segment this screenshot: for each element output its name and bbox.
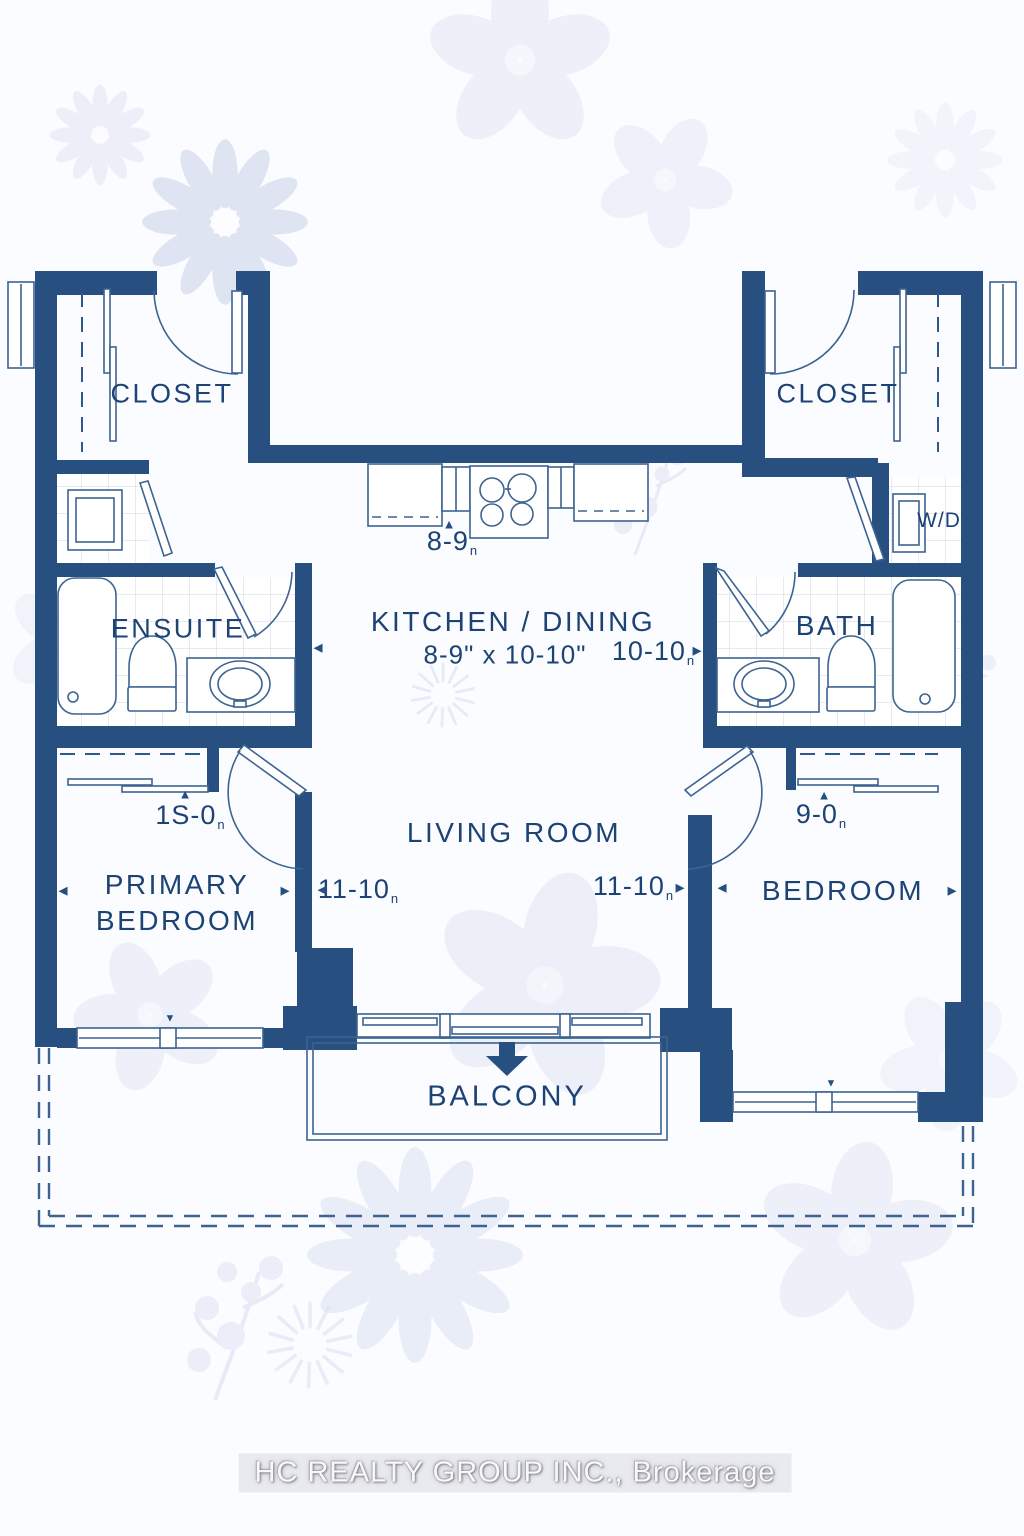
- dim-arrow-right-icon: ►: [690, 644, 705, 659]
- closet-left-door-leaf: [232, 291, 242, 373]
- primary-bedroom-label: PRIMARY BEDROOM: [87, 867, 267, 939]
- kitchen-counter-right: [574, 464, 648, 521]
- closet-left-label: CLOSET: [110, 379, 233, 410]
- kitchen-size-label: 8-9" x 10-10": [424, 640, 587, 671]
- floor-plan-page: CLOSET CLOSET KITCHEN / DINING 8-9" x 10…: [0, 0, 1024, 1536]
- primary-bedroom-door-leaf: [238, 745, 306, 796]
- dim-living-right: 11-10n: [593, 871, 673, 903]
- dim-arrow-left-icon: ◄: [715, 881, 730, 896]
- bedroom-door-leaf: [685, 746, 753, 796]
- closet-right-door-arc: [770, 290, 854, 374]
- living-room-label: LIVING ROOM: [407, 817, 621, 849]
- floor-plan-drawing: [0, 0, 1024, 1536]
- kitchen-stove: [470, 466, 548, 538]
- bedroom-label: BEDROOM: [762, 875, 924, 907]
- dim-arrow-up-icon: ▲: [818, 789, 831, 802]
- dim-arrow-up-icon: ▲: [443, 518, 456, 531]
- laundry-label: W/D: [917, 509, 961, 533]
- dim-primary-closet: 1S-0n: [155, 800, 224, 832]
- dim-arrow-left-icon: ◄: [315, 883, 330, 898]
- closet-right-door-leaf: [765, 291, 775, 373]
- ensuite-label: ENSUITE: [111, 614, 246, 645]
- dim-arrow-right-icon: ►: [278, 884, 293, 899]
- dim-arrow-left-icon: ◄: [311, 641, 326, 656]
- bath-label: BATH: [796, 610, 879, 642]
- dim-bedroom-closet: 9-0n: [796, 799, 846, 831]
- dim-arrow-up-icon: ▲: [179, 788, 192, 801]
- brokerage-watermark: HC REALTY GROUP INC., Brokerage: [239, 1454, 792, 1493]
- bath-bathtub: [893, 580, 955, 712]
- window-marker-down-icon: ▼: [165, 1014, 176, 1025]
- kitchen-label: KITCHEN / DINING: [371, 606, 655, 638]
- bath-toilet: [828, 636, 875, 687]
- window-marker-down-icon: ▼: [826, 1079, 837, 1090]
- ensuite-bathtub: [58, 578, 116, 714]
- dim-arrow-right-icon: ►: [945, 884, 960, 899]
- dim-arrow-right-icon: ►: [673, 881, 688, 896]
- dim-living-left: 11-10n: [318, 874, 398, 906]
- closet-right-label: CLOSET: [776, 379, 899, 410]
- dim-arrow-left-icon: ◄: [56, 884, 71, 899]
- balcony-label: BALCONY: [427, 1081, 587, 1114]
- balcony-entry-arrow-icon: [486, 1042, 528, 1078]
- dim-kitchen-depth: 10-10n: [612, 636, 694, 668]
